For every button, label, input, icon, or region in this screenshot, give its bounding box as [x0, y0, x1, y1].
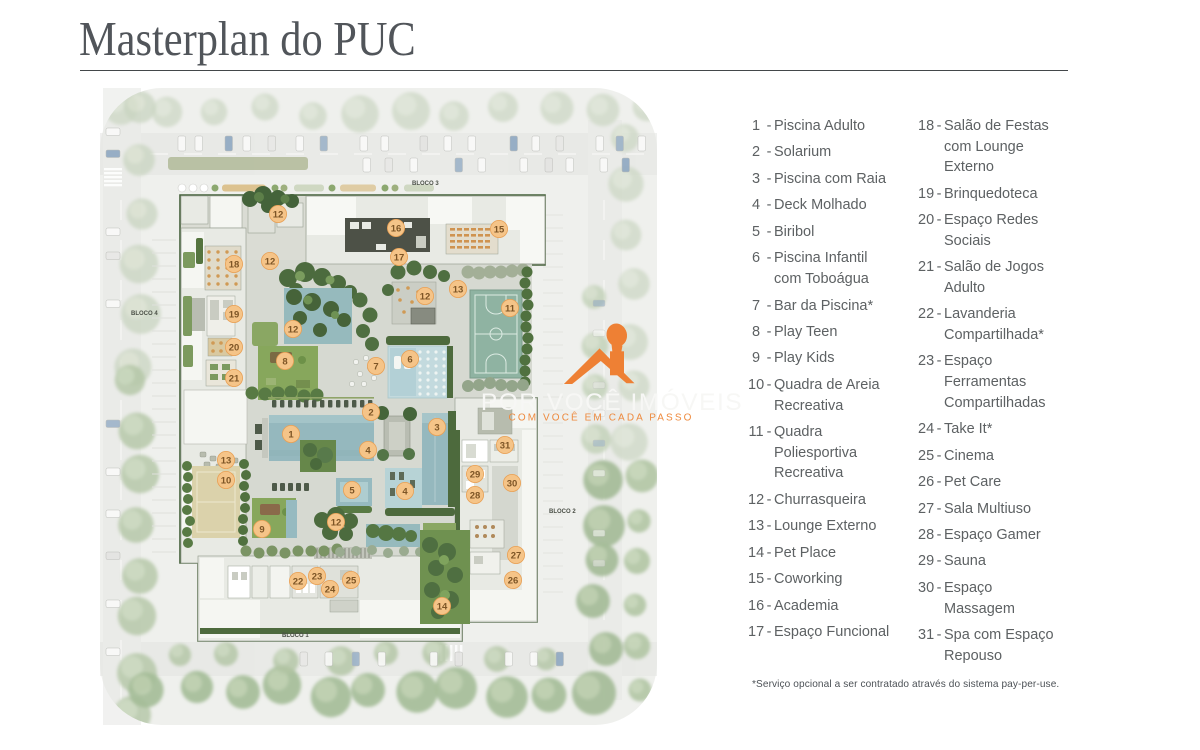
- svg-text:11: 11: [505, 303, 516, 314]
- svg-text:7: 7: [373, 361, 378, 372]
- svg-text:9: 9: [259, 524, 264, 535]
- svg-text:20: 20: [229, 342, 240, 353]
- svg-text:BLOCO 2: BLOCO 2: [549, 509, 576, 515]
- svg-text:BLOCO 1: BLOCO 1: [282, 633, 309, 639]
- svg-text:30: 30: [507, 478, 518, 489]
- svg-text:15: 15: [494, 224, 505, 235]
- svg-text:13: 13: [453, 284, 464, 295]
- svg-text:4: 4: [402, 486, 408, 497]
- svg-text:3: 3: [434, 422, 439, 433]
- svg-text:12: 12: [273, 209, 284, 220]
- svg-text:31: 31: [500, 440, 511, 451]
- svg-text:10: 10: [221, 475, 232, 486]
- svg-text:5: 5: [349, 485, 355, 496]
- svg-text:1: 1: [288, 429, 294, 440]
- svg-text:2: 2: [368, 407, 373, 418]
- svg-text:14: 14: [437, 601, 448, 612]
- svg-text:24: 24: [325, 584, 336, 595]
- svg-text:28: 28: [470, 490, 481, 501]
- svg-text:BLOCO 3: BLOCO 3: [412, 181, 439, 187]
- svg-text:25: 25: [346, 575, 357, 586]
- svg-text:BLOCO 4: BLOCO 4: [131, 311, 158, 317]
- svg-text:17: 17: [394, 252, 405, 263]
- svg-text:13: 13: [221, 455, 232, 466]
- svg-text:12: 12: [420, 291, 431, 302]
- svg-text:26: 26: [508, 575, 519, 586]
- svg-text:COM VOCÊ EM CADA PASSO: COM VOCÊ EM CADA PASSO: [509, 411, 694, 424]
- svg-text:27: 27: [511, 550, 522, 561]
- svg-text:16: 16: [391, 223, 402, 234]
- svg-text:12: 12: [265, 256, 276, 267]
- svg-text:22: 22: [293, 576, 304, 587]
- svg-text:29: 29: [470, 469, 481, 480]
- svg-text:8: 8: [282, 356, 287, 367]
- svg-text:18: 18: [229, 259, 240, 270]
- svg-text:12: 12: [331, 517, 342, 528]
- svg-text:23: 23: [312, 571, 323, 582]
- svg-text:4: 4: [365, 445, 371, 456]
- svg-text:6: 6: [407, 354, 412, 365]
- svg-text:19: 19: [229, 309, 240, 320]
- svg-text:21: 21: [229, 373, 240, 384]
- svg-text:12: 12: [288, 324, 299, 335]
